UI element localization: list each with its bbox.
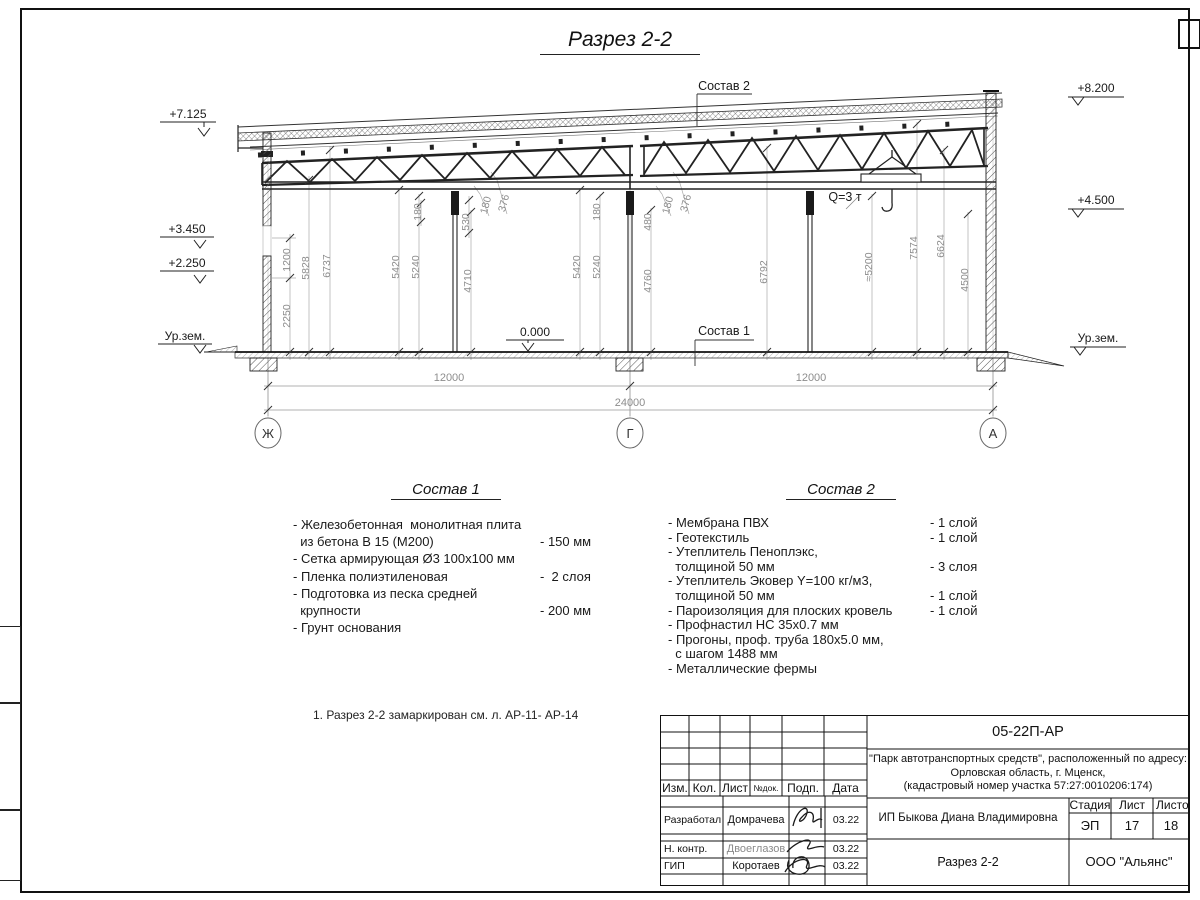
svg-text:376: 376	[496, 193, 512, 213]
svg-text:+4.500: +4.500	[1077, 193, 1114, 207]
svg-text:1200: 1200	[281, 248, 293, 272]
svg-text:6737: 6737	[321, 254, 333, 278]
svg-text:Ур.зем.: Ур.зем.	[1078, 331, 1119, 345]
signature	[793, 808, 822, 828]
svg-text:+3.450: +3.450	[168, 222, 205, 236]
composition-1-list: - Железобетонная монолитная плита из бет…	[293, 516, 623, 636]
list-item: - Утеплитель Пеноплэкс,	[668, 545, 998, 560]
svg-text:+2.250: +2.250	[168, 256, 205, 270]
composition-2-heading: Состав 2	[786, 481, 896, 500]
svg-text:5420: 5420	[390, 255, 402, 279]
project-line: "Парк автотранспортных средств", располо…	[867, 752, 1189, 766]
composition-2-list: - Мембрана ПВХ- 1 слой - Геотекстиль- 1 …	[668, 516, 998, 677]
svg-text:2250: 2250	[281, 304, 293, 328]
title-block: Изм. Кол. Лист №док. Подп. Дата Разработ…	[660, 715, 1190, 886]
sheet-value: 17	[1111, 813, 1153, 839]
svg-text:≈5200: ≈5200	[863, 252, 875, 281]
tb-col-ndok: №док.	[750, 780, 782, 796]
list-item: - Утеплитель Эковер Y=100 кг/м3,	[668, 574, 998, 589]
list-item: толщиной 50 мм- 3 слоя	[668, 560, 998, 575]
svg-text:180: 180	[591, 203, 603, 221]
list-item: с шагом 1488 мм	[668, 647, 998, 662]
filing-box	[0, 626, 21, 704]
list-item: - Пароизоляция для плоских кровель- 1 сл…	[668, 604, 998, 619]
svg-text:4710: 4710	[462, 269, 474, 293]
svg-text:0.000: 0.000	[520, 325, 550, 339]
tb-date: 03.22	[825, 841, 867, 858]
axis-label: Г	[626, 426, 633, 441]
list-item: из бетона В 15 (М200)- 150 мм	[293, 533, 623, 550]
project-line: (кадастровый номер участка 57:27:0010206…	[867, 779, 1189, 793]
svg-text:180: 180	[660, 195, 676, 215]
svg-text:5240: 5240	[410, 255, 422, 279]
tb-col-izm: Изм.	[661, 780, 689, 796]
svg-text:24000: 24000	[615, 397, 646, 409]
floor-slab	[204, 346, 1064, 371]
sheet-label: Лист	[1111, 798, 1153, 813]
sheets-label: Листов	[1153, 798, 1190, 813]
sheet-note: 1. Разрез 2-2 замаркирован см. л. АР-11-…	[313, 708, 578, 722]
list-item: - Мембрана ПВХ- 1 слой	[668, 516, 998, 531]
sheets-value: 18	[1153, 813, 1189, 839]
svg-text:+7.125: +7.125	[169, 107, 206, 121]
section-drawing: Ж Г А 1200 2250 5828 6737 5420 5240 180 …	[0, 0, 1200, 470]
tb-role: Н. контр.	[664, 841, 722, 858]
svg-text:12000: 12000	[796, 372, 827, 384]
composition-1-heading: Состав 1	[391, 481, 501, 500]
company-name: ООО "Альянс"	[1069, 839, 1189, 885]
project-line: Орловская область, г. Мценск,	[867, 766, 1189, 780]
svg-text:5828: 5828	[300, 256, 312, 280]
stage-value: ЭП	[1069, 813, 1111, 839]
svg-text:+8.200: +8.200	[1077, 81, 1114, 95]
sostav1-ref-label: Состав 1	[698, 324, 750, 338]
svg-text:4500: 4500	[959, 268, 971, 292]
list-item: - Пленка полиэтиленовая- 2 слоя	[293, 568, 623, 585]
tb-role: ГИП	[664, 858, 722, 874]
tb-col-podp: Подп.	[782, 780, 824, 796]
list-item: - Профнастил НС 35х0.7 мм	[668, 618, 998, 633]
tb-role: Разработал	[664, 807, 722, 834]
svg-text:12000: 12000	[434, 372, 465, 384]
list-item: - Грунт основания	[293, 619, 623, 636]
left-wall	[263, 133, 271, 352]
list-item: - Прогоны, проф. труба 180х5.0 мм,	[668, 633, 998, 648]
tb-col-data: Дата	[824, 780, 867, 796]
tb-col-list: Лист	[720, 780, 750, 796]
svg-text:180: 180	[478, 195, 494, 215]
svg-text:480: 480	[642, 213, 654, 231]
list-item: толщиной 50 мм- 1 слой	[668, 589, 998, 604]
svg-text:7574: 7574	[908, 236, 920, 260]
stage-label: Стадия	[1069, 798, 1111, 813]
tb-col-kol: Кол.	[689, 780, 720, 796]
svg-text:6624: 6624	[935, 234, 947, 258]
svg-text:5420: 5420	[571, 255, 583, 279]
list-item: крупности- 200 мм	[293, 602, 623, 619]
crane-capacity-label: Q=3 т	[828, 190, 861, 204]
sostav2-ref-label: Состав 2	[698, 79, 750, 93]
tb-name: Домрачева	[723, 807, 789, 834]
list-item: - Железобетонная монолитная плита	[293, 516, 623, 533]
svg-text:530: 530	[460, 213, 472, 231]
tb-name: Коротаев	[723, 858, 789, 874]
axis-label: А	[989, 426, 998, 441]
tb-date: 03.22	[825, 858, 867, 874]
axis-bubbles: Ж Г А	[255, 418, 1006, 448]
svg-text:5240: 5240	[591, 255, 603, 279]
tb-date: 03.22	[825, 807, 867, 834]
svg-text:180: 180	[412, 203, 424, 221]
list-item: - Сетка армирующая Ø3 100х100 мм	[293, 550, 623, 567]
svg-text:Ур.зем.: Ур.зем.	[165, 329, 206, 343]
list-item: - Металлические фермы	[668, 662, 998, 677]
document-number: 05-22П-АР	[867, 716, 1189, 749]
filing-box	[0, 809, 21, 881]
svg-text:6792: 6792	[758, 260, 770, 284]
right-wall	[983, 91, 999, 352]
svg-text:376: 376	[678, 193, 694, 213]
drawing-sheet: Разрез 2-2	[0, 0, 1200, 900]
axis-label: Ж	[262, 426, 274, 441]
filing-box	[0, 702, 21, 811]
tb-name: Двоеглазов	[723, 841, 789, 858]
sheet-name: Разрез 2-2	[867, 839, 1069, 885]
signature	[785, 840, 825, 874]
client-name: ИП Быкова Диана Владимировна	[867, 798, 1069, 839]
list-item: - Геотекстиль- 1 слой	[668, 531, 998, 546]
list-item: - Подготовка из песка средней	[293, 585, 623, 602]
svg-text:4760: 4760	[642, 269, 654, 293]
